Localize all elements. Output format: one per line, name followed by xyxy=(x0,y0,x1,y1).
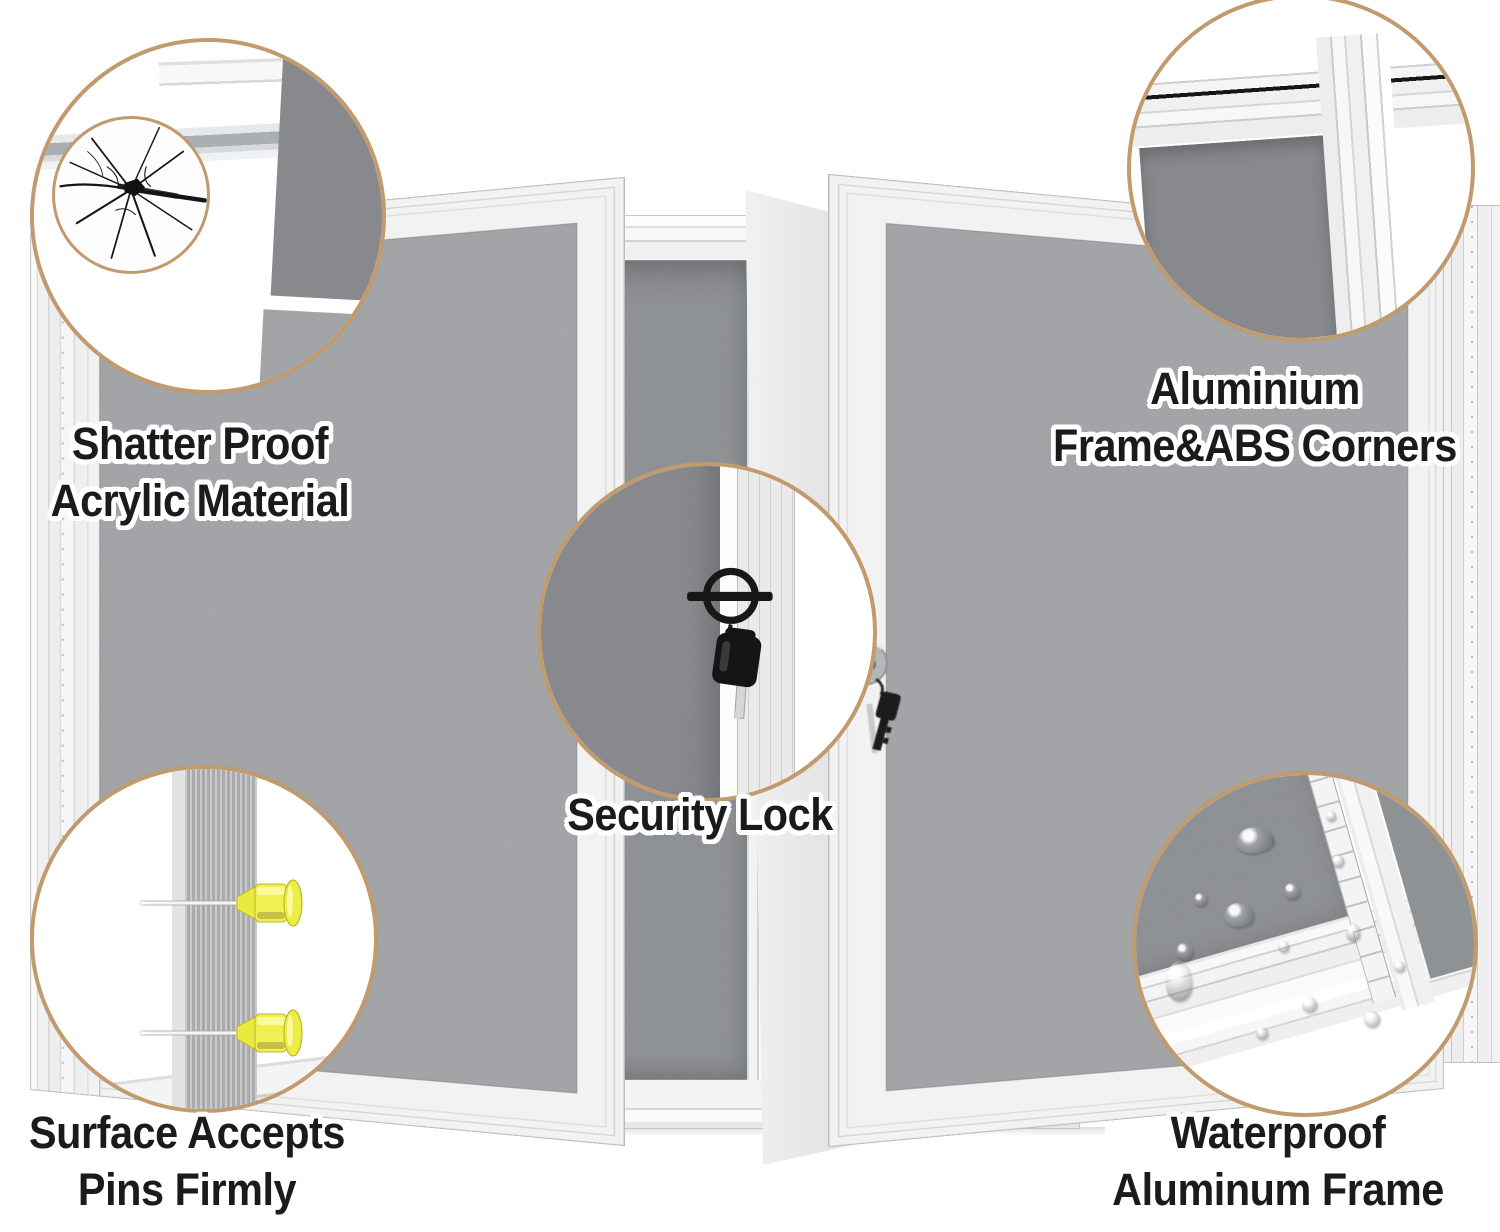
water-drop-icon xyxy=(1364,1011,1380,1027)
water-drop-icon xyxy=(1346,923,1360,941)
push-pin-icon xyxy=(139,997,344,1071)
water-drop-icon xyxy=(1176,943,1193,960)
label-aluminium-corners: Aluminium Frame&ABS Corners xyxy=(1034,360,1476,474)
pins-art xyxy=(34,769,374,1109)
label-line: Pins Firmly xyxy=(8,1161,367,1218)
push-pin-icon xyxy=(139,867,344,941)
water-drop-icon xyxy=(1224,903,1254,927)
felt-detail xyxy=(270,38,386,303)
lock-art xyxy=(541,466,873,798)
cracked-glass-icon xyxy=(52,116,210,274)
label-shatter-proof: Shatter Proof Acrylic Material xyxy=(16,415,384,529)
shatter-art xyxy=(34,42,382,390)
label-line: Security Lock xyxy=(470,786,930,843)
label-line: Aluminum Frame xyxy=(1066,1161,1489,1218)
label-line: Waterproof xyxy=(1066,1104,1489,1161)
label-security-lock: Security Lock xyxy=(470,786,930,843)
water-drop-icon xyxy=(1284,883,1300,899)
label-line: Shatter Proof xyxy=(16,415,384,472)
frame-corner-art xyxy=(1127,0,1475,342)
callout-shatter-proof xyxy=(30,38,386,394)
water-drop-icon xyxy=(1394,961,1405,972)
label-line: Frame&ABS Corners xyxy=(1034,417,1476,474)
callout-security-lock xyxy=(537,462,877,802)
water-drop-icon xyxy=(1278,941,1289,952)
label-line: Aluminium xyxy=(1034,360,1476,417)
water-drop-icon xyxy=(1302,997,1317,1012)
callout-pins xyxy=(30,765,378,1113)
felt-detail xyxy=(257,310,386,394)
callout-waterproof xyxy=(1132,771,1478,1117)
label-waterproof-frame: Waterproof Aluminum Frame xyxy=(1066,1104,1489,1218)
label-surface-pins: Surface Accepts Pins Firmly xyxy=(8,1104,367,1218)
door-frame-detail xyxy=(158,38,286,121)
security-lock-icon xyxy=(681,561,793,751)
felt-texture xyxy=(1139,136,1339,342)
label-line: Acrylic Material xyxy=(16,472,384,529)
water-drop-icon xyxy=(1326,811,1336,821)
felt-texture xyxy=(257,310,386,394)
water-drop-icon xyxy=(1194,893,1207,906)
label-line: Surface Accepts xyxy=(8,1104,367,1161)
felt-texture xyxy=(270,38,386,303)
frame-top-bands xyxy=(1127,48,1475,149)
water-drop-icon xyxy=(1256,1027,1268,1039)
felt-detail xyxy=(1139,136,1339,342)
water-drop-icon xyxy=(1332,855,1344,867)
product-feature-image: Shatter Proof Acrylic Material Aluminium… xyxy=(0,0,1500,1232)
callout-aluminium-corner xyxy=(1127,0,1475,342)
